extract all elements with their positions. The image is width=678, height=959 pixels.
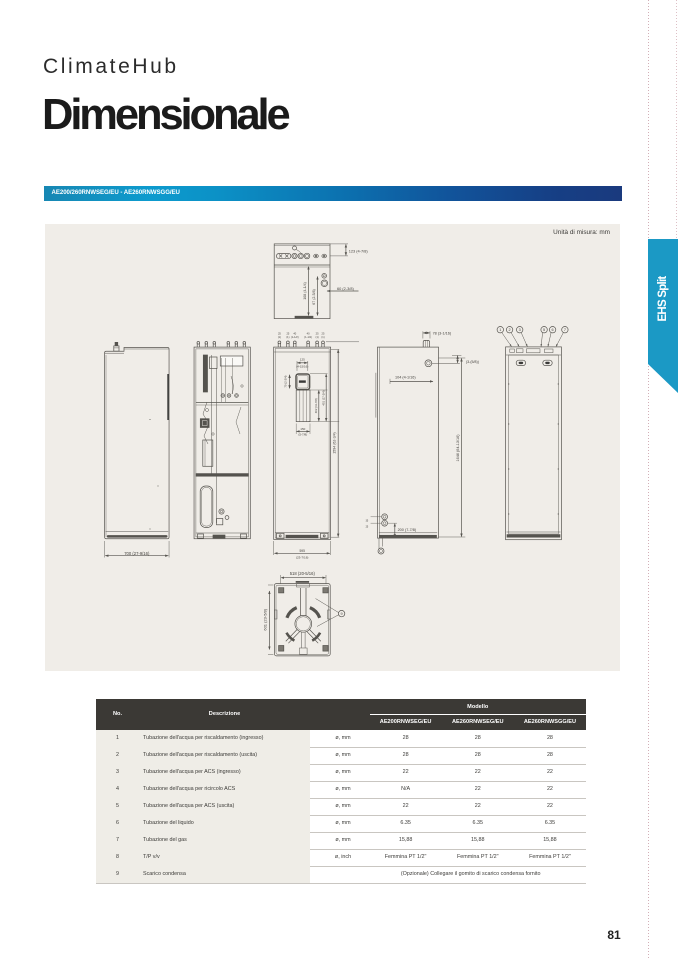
svg-text:1: 1 [499,328,501,332]
svg-text:25: 25 [321,332,324,336]
svg-text:451 (17-3/4): 451 (17-3/4) [321,390,325,405]
svg-text:123 (4-7/8): 123 (4-7/8) [348,249,368,254]
svg-text:5: 5 [543,328,545,332]
svg-text:(1-1/2): (1-1/2) [304,335,312,339]
svg-text:125: 125 [299,358,304,362]
svg-text:2: 2 [508,328,510,332]
svg-text:78 (3-1/16): 78 (3-1/16) [432,331,451,335]
svg-text:40: 40 [306,332,309,336]
svg-text:200 (7-7/8): 200 (7-7/8) [397,528,416,532]
svg-text:40: 40 [293,332,296,336]
svg-text:25: 25 [286,332,289,336]
svg-text:7: 7 [564,328,566,332]
svg-text:302 (11-7/8): 302 (11-7/8) [314,398,318,413]
svg-text:60 (2-3/8): 60 (2-3/8) [337,286,355,291]
svg-text:(23-7/16): (23-7/16) [296,556,309,560]
svg-text:25: 25 [278,332,281,336]
svg-text:104 (4-1/16): 104 (4-1/16) [395,376,416,380]
svg-text:(1): (1) [315,335,318,339]
svg-text:700 (27-9/16): 700 (27-9/16) [124,551,150,556]
svg-text:3: 3 [518,328,520,332]
svg-text:67 (2-5/8): 67 (2-5/8) [312,289,316,305]
svg-text:(1): (1) [278,335,281,339]
svg-text:70 (2-3/4): 70 (2-3/4) [283,375,287,387]
svg-text:(1): (1) [321,335,324,339]
svg-text:1594 (62-3/4): 1594 (62-3/4) [332,432,336,453]
svg-text:601 (23-5/8): 601 (23-5/8) [262,608,267,630]
svg-text:(1): (1) [286,335,289,339]
svg-text:25: 25 [365,525,368,528]
svg-text:25: 25 [315,332,318,336]
svg-text:518 (20-5/16): 518 (20-5/16) [289,571,315,576]
svg-text:35: 35 [365,519,368,522]
svg-text:EHS Split: EHS Split [657,276,669,322]
svg-text:9: 9 [340,612,342,616]
svg-text:(5-7/8): (5-7/8) [298,433,307,437]
svg-text:(3-(5/8)): (3-(5/8)) [466,360,479,364]
svg-text:6: 6 [551,328,553,332]
svg-text:(4-15/16): (4-15/16) [296,365,308,369]
svg-text:150: 150 [300,427,305,431]
svg-text:(1-1/2): (1-1/2) [291,335,299,339]
svg-text:108 (4-1/4): 108 (4-1/4) [303,282,307,300]
svg-text:595: 595 [299,549,305,553]
svg-text:1646 (64-13/16): 1646 (64-13/16) [455,434,459,462]
